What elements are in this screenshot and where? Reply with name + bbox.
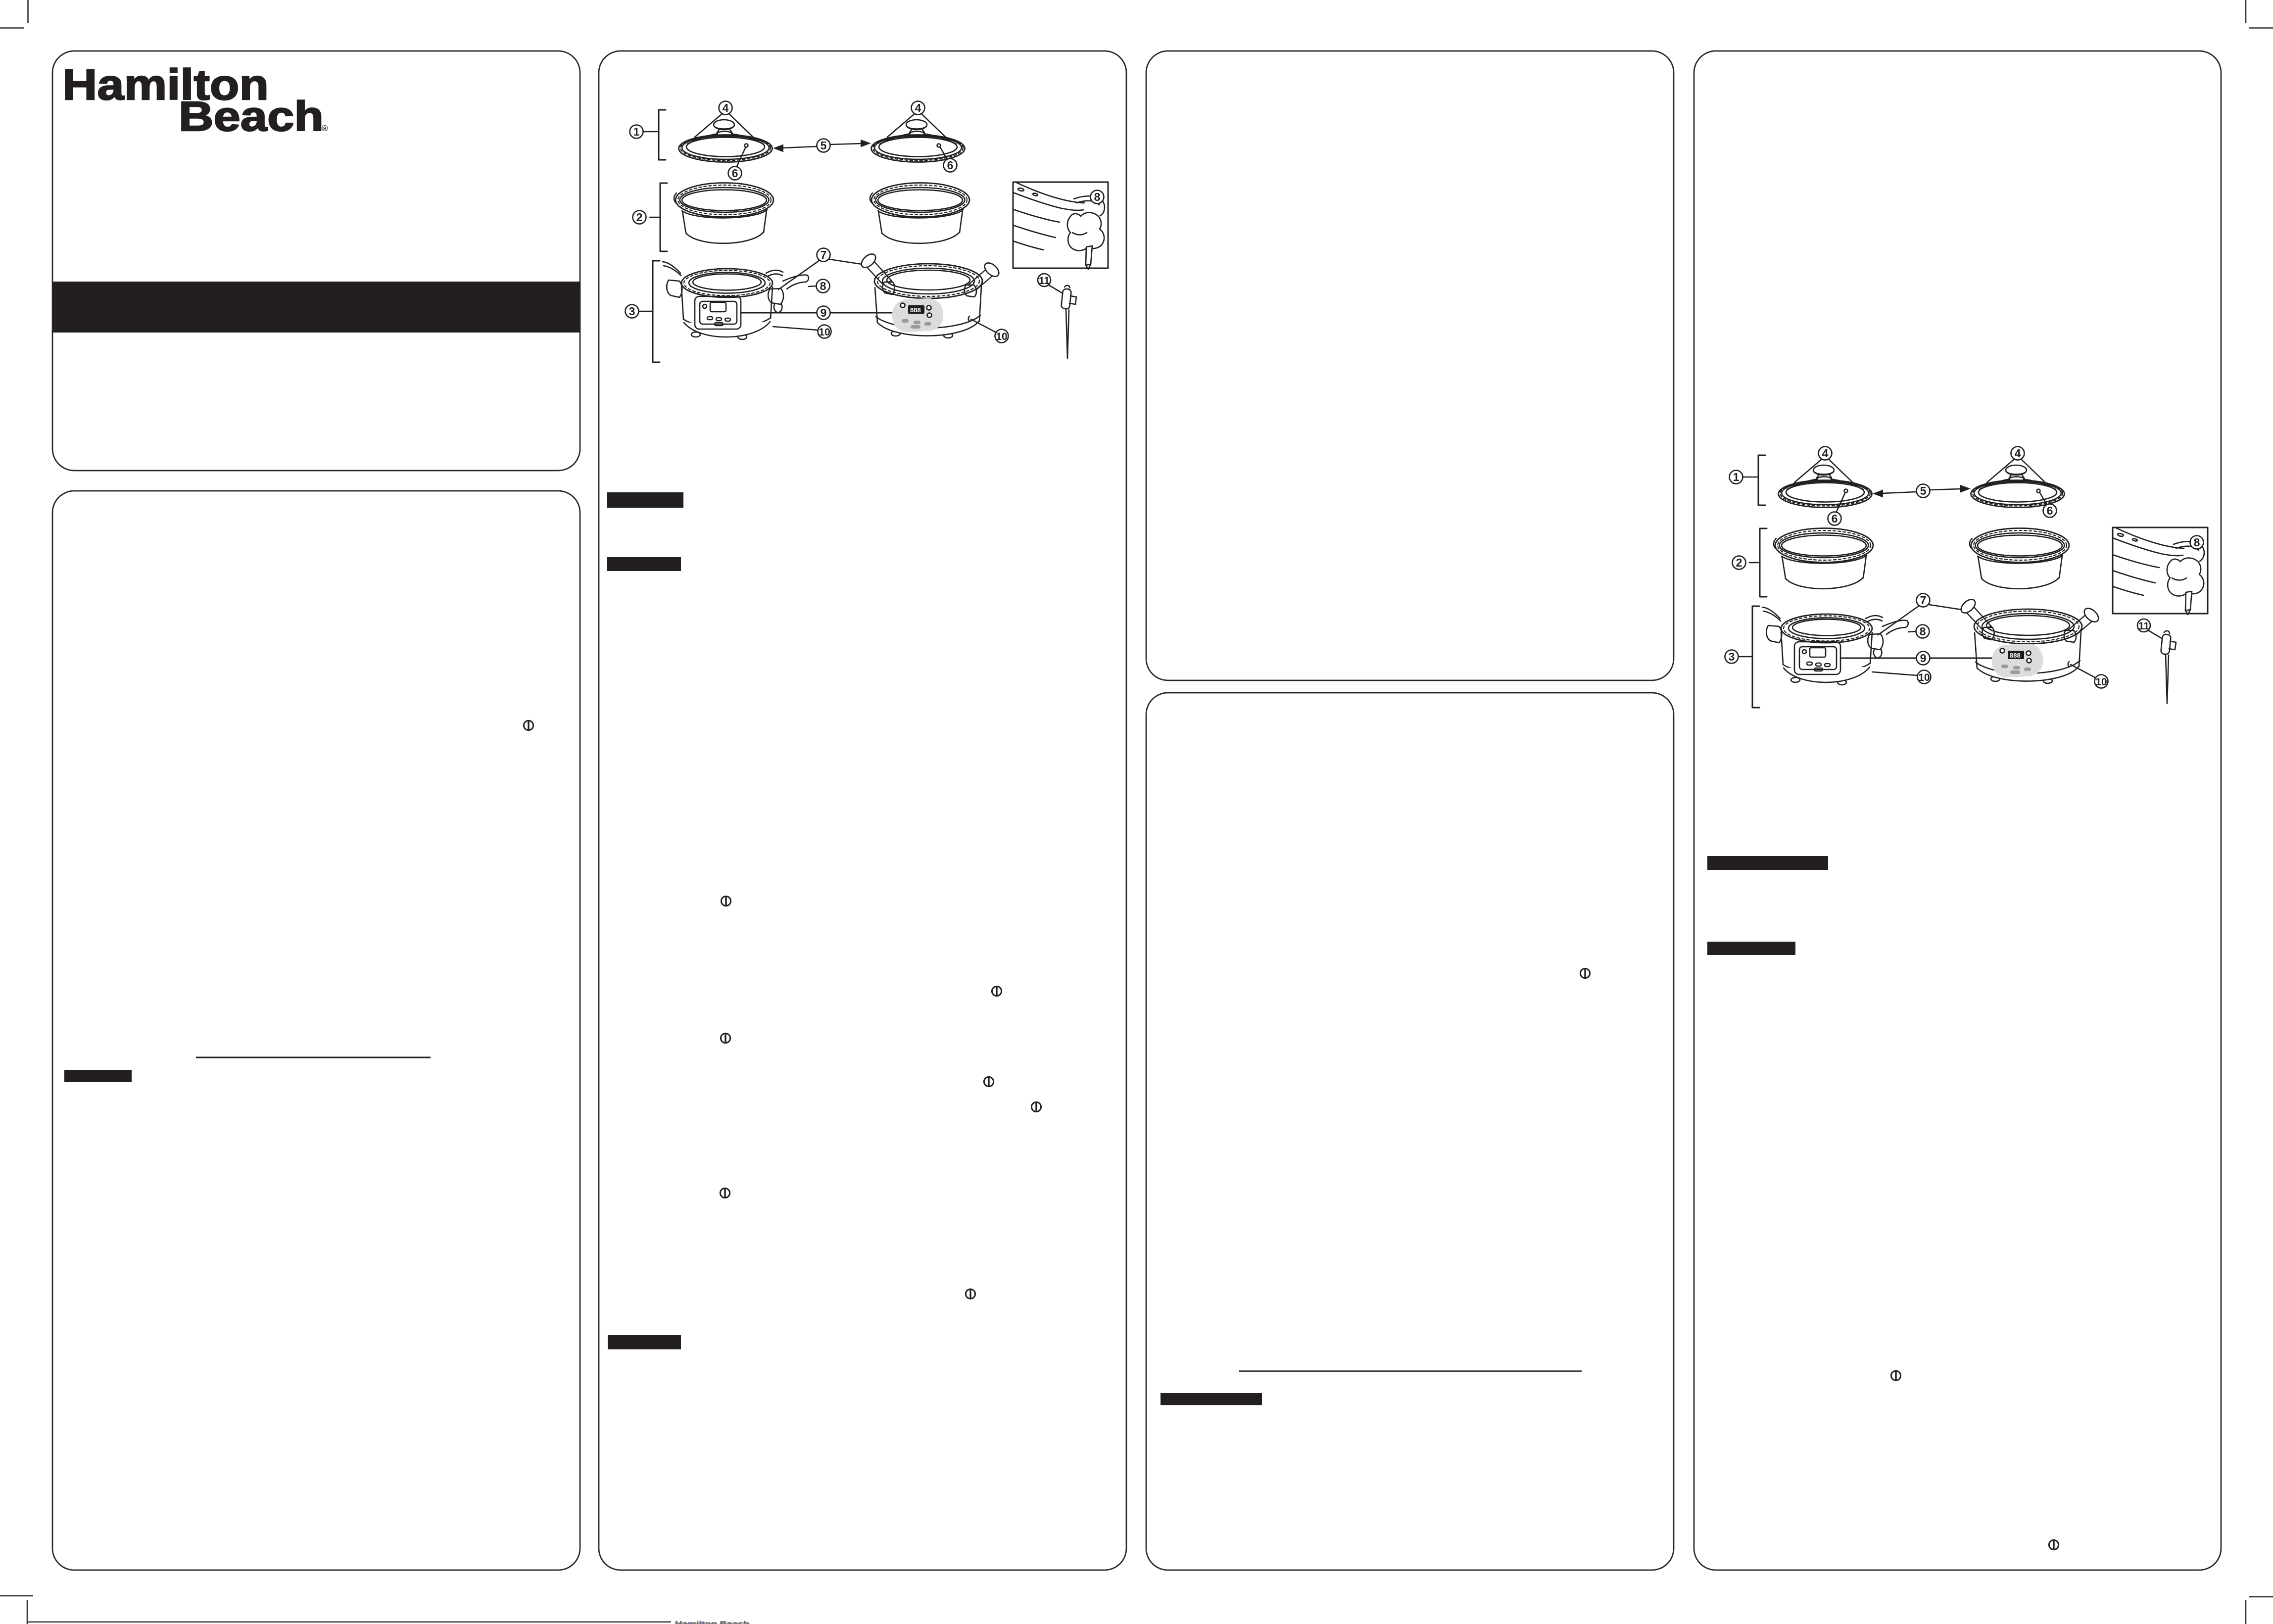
svg-text:Hamilton Beach: Hamilton Beach (675, 1621, 749, 1624)
svg-text:®: ® (322, 124, 328, 133)
svg-text:Beach: Beach (179, 93, 324, 140)
